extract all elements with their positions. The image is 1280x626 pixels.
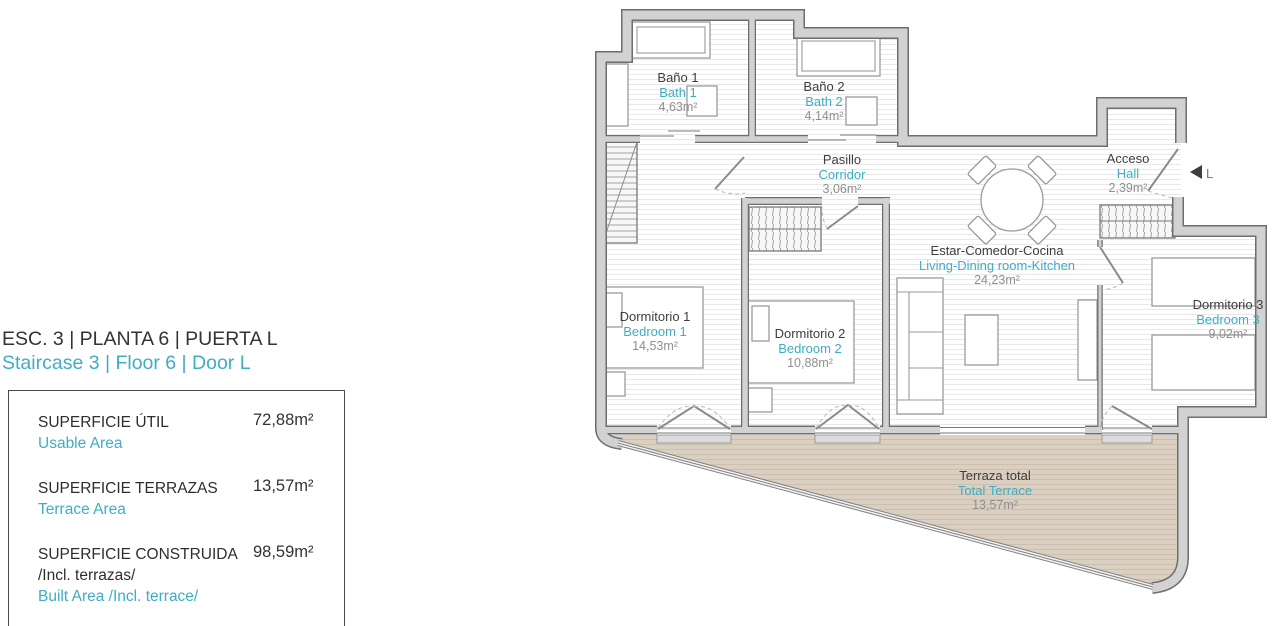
table-row: SUPERFICIE CONSTRUIDA /Incl. terrazas/ B… (38, 544, 344, 607)
coffee-table (965, 315, 998, 365)
room-area: 13,57m² (958, 498, 1032, 513)
area-table: SUPERFICIE ÚTIL Usable Area 72,88m² SUPE… (8, 390, 345, 626)
room-name-en: Corridor (819, 167, 866, 182)
room-label-corridor: Pasillo Corridor 3,06m² (819, 152, 866, 197)
room-name-en: Bedroom 1 (620, 324, 691, 339)
room-name-es: Dormitorio 1 (620, 309, 691, 324)
terrace-area (606, 435, 1178, 587)
room-area: 4,14m² (803, 109, 844, 124)
room-name-es: Pasillo (819, 152, 866, 167)
table-row: SUPERFICIE TERRAZAS Terrace Area 13,57m² (38, 478, 344, 520)
room-name-es: Estar-Comedor-Cocina (919, 243, 1075, 258)
row-label-en: Usable Area (38, 433, 344, 454)
room-label-living: Estar-Comedor-Cocina Living-Dining room-… (919, 243, 1075, 288)
sideboard (1078, 300, 1097, 380)
row-value: 98,59m² (253, 542, 314, 563)
room-name-es: Dormitorio 2 (775, 326, 846, 341)
room-label-bath1: Baño 1 Bath 1 4,63m² (657, 70, 698, 115)
room-area: 14,53m² (620, 339, 691, 354)
room-name-es: Terraza total (958, 468, 1032, 483)
info-panel: ESC. 3 | PLANTA 6 | PUERTA L Staircase 3… (0, 0, 380, 626)
room-area: 3,06m² (819, 182, 866, 197)
room-area: 2,39m² (1107, 181, 1150, 196)
row-value: 13,57m² (253, 476, 314, 497)
table-row: SUPERFICIE ÚTIL Usable Area 72,88m² (38, 412, 344, 454)
room-name-en: Bath 1 (657, 85, 698, 100)
room-name-es: Baño 2 (803, 79, 844, 94)
room-name-es: Acceso (1107, 151, 1150, 166)
room-name-en: Hall (1107, 166, 1150, 181)
room-area: 10,88m² (775, 356, 846, 371)
room-name-en: Living-Dining room-Kitchen (919, 258, 1075, 273)
room-label-bedroom2: Dormitorio 2 Bedroom 2 10,88m² (775, 326, 846, 371)
room-label-bedroom1: Dormitorio 1 Bedroom 1 14,53m² (620, 309, 691, 354)
room-name-es: Baño 1 (657, 70, 698, 85)
room-label-bath2: Baño 2 Bath 2 4,14m² (803, 79, 844, 124)
row-label-en: Built Area /Incl. terrace/ (38, 586, 344, 607)
room-label-terrace: Terraza total Total Terrace 13,57m² (958, 468, 1032, 513)
room-area: 9,02m² (1193, 327, 1264, 342)
room-name-en: Total Terrace (958, 483, 1032, 498)
unit-title: ESC. 3 | PLANTA 6 | PUERTA L (2, 328, 278, 351)
floor-plan-page: L Baño 1 Bath 1 4,63m² Baño 2 Bath 2 4,1… (0, 0, 1280, 626)
entrance-marker: L (1190, 165, 1213, 181)
sofa (897, 278, 943, 414)
dining-table (967, 155, 1056, 244)
room-name-es: Dormitorio 3 (1193, 297, 1264, 312)
row-label-en: Terrace Area (38, 499, 344, 520)
room-label-hall: Acceso Hall 2,39m² (1107, 151, 1150, 196)
row-label-es2: /Incl. terrazas/ (38, 565, 344, 586)
entrance-arrow-icon (1190, 165, 1202, 179)
unit-subtitle: Staircase 3 | Floor 6 | Door L (2, 352, 251, 375)
room-name-en: Bedroom 3 (1193, 312, 1264, 327)
row-value: 72,88m² (253, 410, 314, 431)
room-name-en: Bedroom 2 (775, 341, 846, 356)
room-area: 24,23m² (919, 273, 1075, 288)
entrance-letter: L (1206, 166, 1213, 181)
room-name-en: Bath 2 (803, 94, 844, 109)
room-label-bedroom3: Dormitorio 3 Bedroom 3 9,02m² (1193, 297, 1264, 342)
room-area: 4,63m² (657, 100, 698, 115)
